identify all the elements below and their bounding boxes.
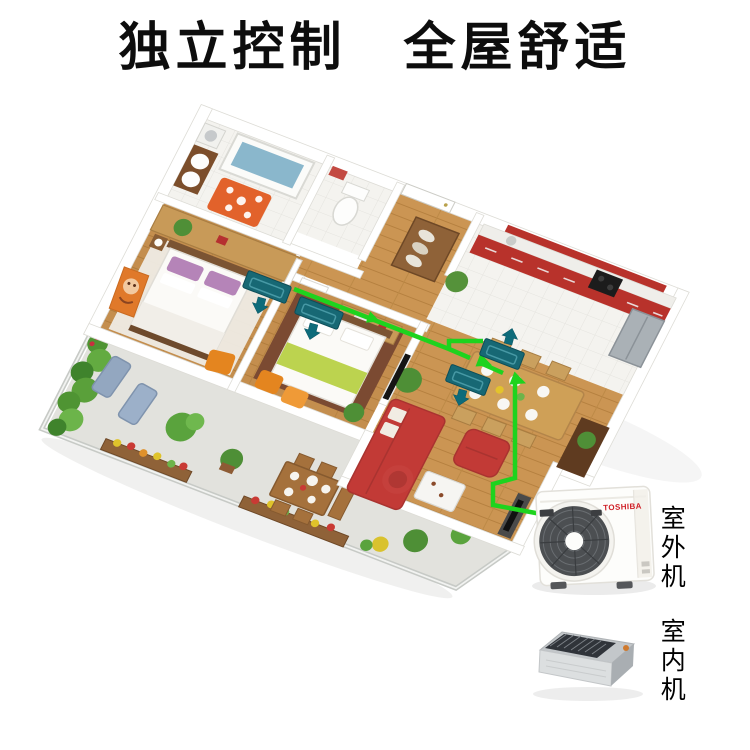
- product-page: 独立控制 全屋舒适: [0, 0, 750, 750]
- outdoor-unit-illustration: TOSHIBA: [532, 486, 656, 595]
- indoor-unit-illustration: [533, 632, 643, 701]
- outdoor-unit-label: 室外机: [658, 505, 684, 592]
- indoor-unit-label: 室内机: [658, 618, 684, 705]
- wiring-detail: [623, 645, 629, 651]
- floor-plan-scene: TOSHIBA: [0, 0, 750, 750]
